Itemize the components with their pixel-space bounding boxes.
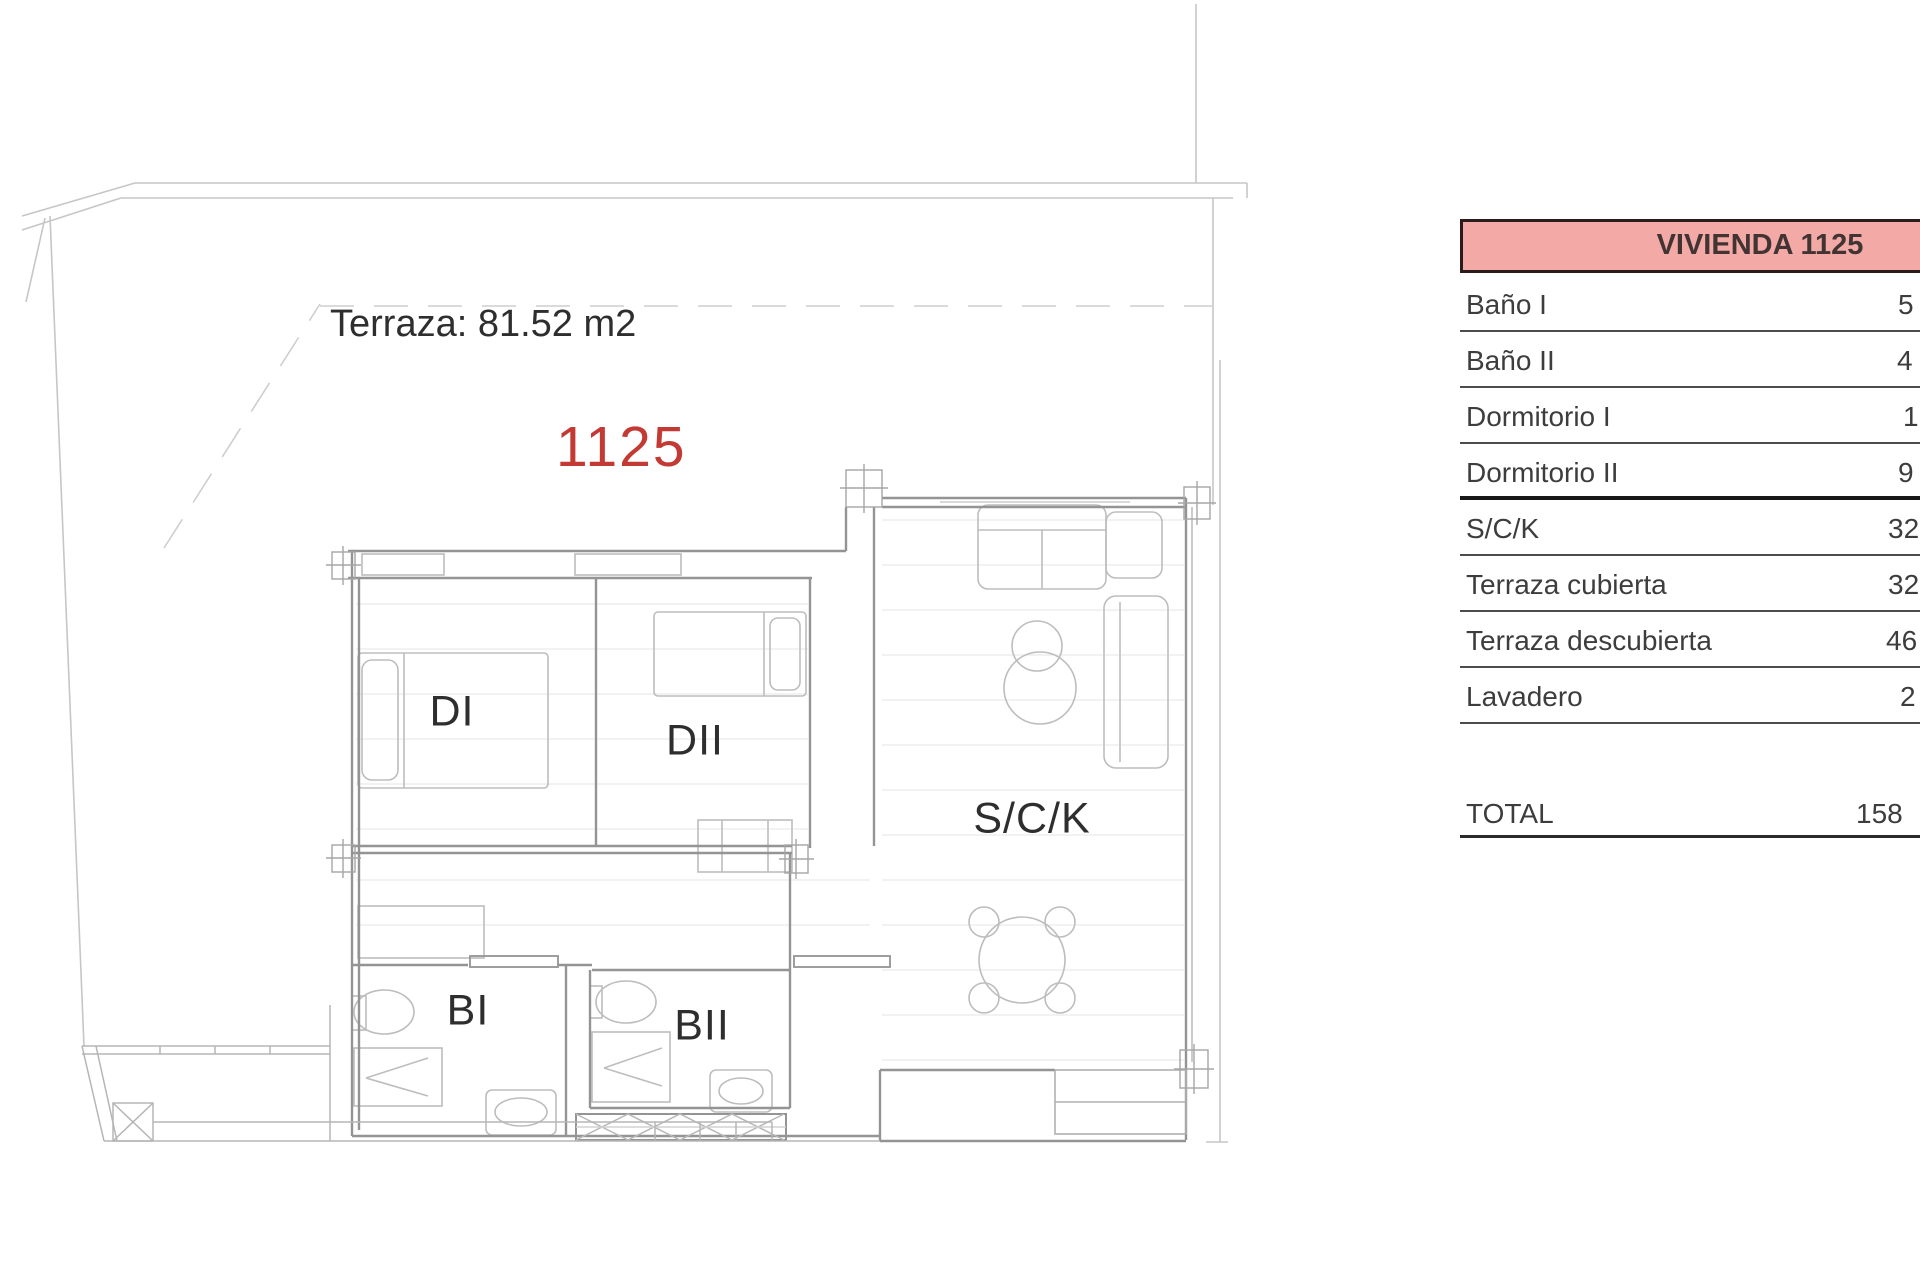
toilet-bii: [596, 981, 656, 1023]
row-value: 5: [1898, 289, 1914, 321]
table-total-row: TOTAL 158: [1460, 790, 1920, 838]
table-row: Terraza descubierta 46: [1460, 612, 1920, 668]
terrace-dashed-edge: [164, 304, 1213, 548]
floor-plan-page: Terraza: 81.52 m2 1125 DI DII S/C/K BI B…: [0, 0, 1920, 1280]
side-table: [1012, 621, 1062, 671]
row-value: 4: [1897, 345, 1913, 377]
row-label: Dormitorio II: [1466, 457, 1618, 489]
row-label: Baño I: [1466, 289, 1547, 321]
pillow-di: [362, 660, 398, 780]
row-value: 32: [1888, 569, 1919, 601]
row-label: Baño II: [1466, 345, 1555, 377]
row-label: Lavadero: [1466, 681, 1583, 713]
table-row: Baño II 4: [1460, 332, 1920, 388]
armchair: [1106, 512, 1162, 578]
chair: [969, 907, 999, 937]
room-label-bano-1: BI: [447, 987, 490, 1036]
row-value: 46: [1886, 625, 1917, 657]
row-label: Terraza cubierta: [1466, 569, 1667, 601]
room-label-salon-cocina: S/C/K: [973, 795, 1090, 844]
dining-table: [979, 917, 1065, 1003]
shower-bii: [592, 1032, 670, 1102]
row-label: S/C/K: [1466, 513, 1539, 545]
room-label-dormitorio-1: DI: [430, 688, 475, 737]
row-label: Terraza descubierta: [1466, 625, 1712, 657]
total-label: TOTAL: [1466, 798, 1554, 830]
chair: [969, 983, 999, 1013]
bed-dii: [654, 612, 806, 696]
coffee-table: [1004, 652, 1076, 724]
table-row: Dormitorio II 9: [1460, 444, 1920, 500]
table-row: Baño I 5: [1460, 276, 1920, 332]
pillow-dii: [770, 618, 800, 690]
table-row: Lavadero 2: [1460, 668, 1920, 724]
row-value: 32: [1888, 513, 1919, 545]
terrace-area-label: Terraza: 81.52 m2: [330, 303, 636, 346]
row-label: Dormitorio I: [1466, 401, 1611, 433]
table-row: Dormitorio I 1: [1460, 388, 1920, 444]
table-row: Terraza cubierta 32: [1460, 556, 1920, 612]
counter: [358, 906, 484, 958]
row-value: 9: [1898, 457, 1914, 489]
chair: [1045, 983, 1075, 1013]
table-row: S/C/K 32: [1460, 500, 1920, 556]
room-label-dormitorio-2: DII: [666, 717, 724, 766]
sink-bi: [486, 1090, 556, 1135]
area-table-header: VIVIENDA 1125: [1460, 219, 1920, 273]
total-value: 158: [1856, 798, 1903, 830]
chair: [1045, 907, 1075, 937]
row-value: 2: [1900, 681, 1916, 713]
row-value: 1: [1903, 401, 1919, 433]
chaise: [1104, 596, 1168, 768]
unit-number-label: 1125: [556, 414, 687, 480]
room-label-bano-2: BII: [674, 1002, 730, 1051]
